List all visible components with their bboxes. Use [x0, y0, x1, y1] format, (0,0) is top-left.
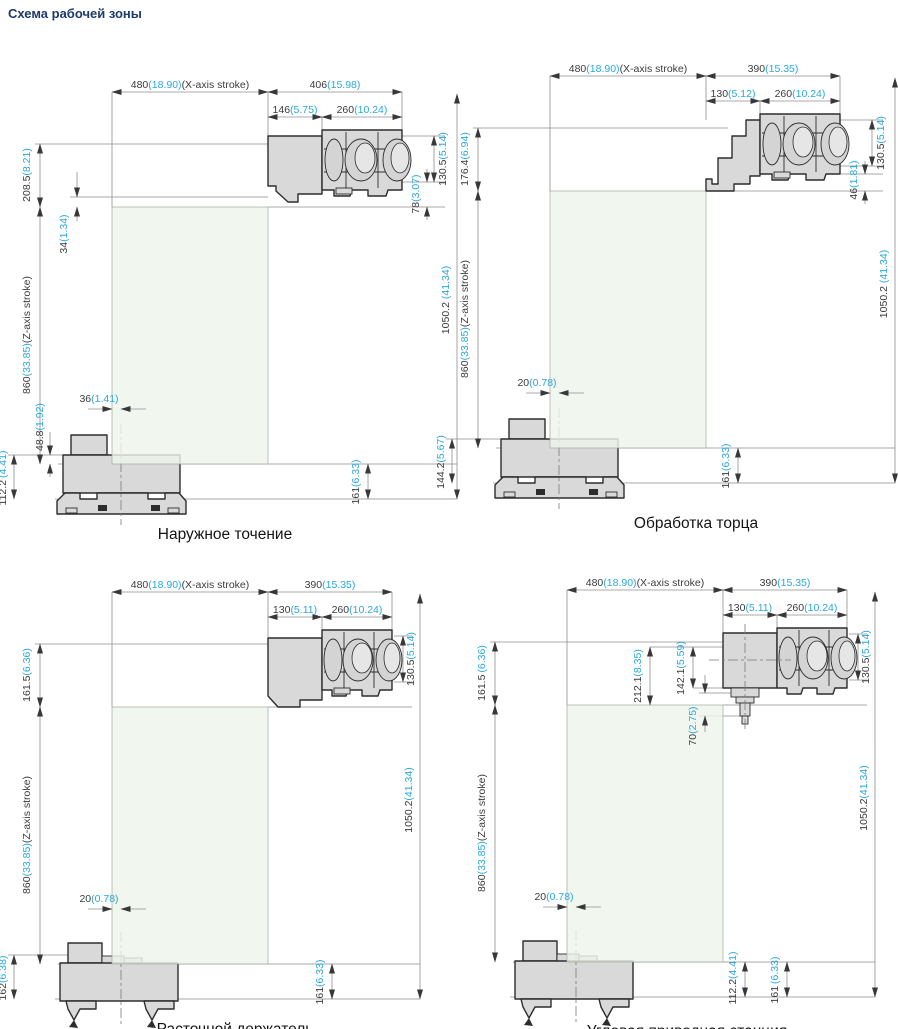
dim-z-stroke: 860(33.85)(Z-axis stroke) [476, 774, 488, 892]
page-title: Схема рабочей зоны [8, 6, 142, 21]
dim-sub1: 130(5.11) [728, 602, 772, 614]
panel-caption: Угловая приводная станция [587, 1023, 787, 1029]
dim-left-top: 176.4(6.94) [459, 132, 471, 186]
dim-total-height: 1050.2(41.34) [403, 767, 415, 832]
panel-caption: Наружное точение [158, 526, 292, 543]
work-zone-diagram: Схема рабочей зоны [0, 0, 898, 1029]
panel-angular-drive-station: 480(18.90)(X-axis stroke) 390(15.35) 130… [476, 577, 875, 1029]
dim-48-8: 48.8(1.92) [34, 403, 46, 451]
dim-130-5: 130.5(5.14) [860, 630, 872, 684]
dim-78: 78(3.07) [410, 174, 422, 213]
dim-sub2: 260(10.24) [337, 104, 388, 116]
work-zone-area [567, 705, 723, 962]
dim-z-stroke: 860(33.85)(Z-axis stroke) [459, 260, 471, 378]
dim-212-1: 212.1(8.35) [632, 649, 644, 703]
dim-total-height: 1050.2(41.34) [440, 266, 452, 334]
dim-turret-width: 406(15.98) [310, 79, 361, 91]
dim-offset: 20(0.78) [534, 891, 573, 903]
dim-70: 70(2.75) [687, 706, 699, 745]
dim-z-stroke: 860(33.85)(Z-axis stroke) [21, 776, 33, 894]
dim-base-left: 112.2(4.41) [0, 451, 9, 506]
dim-x-stroke: 480(18.90)(X-axis stroke) [586, 577, 705, 589]
dim-130-5: 130.5(5.14) [405, 632, 417, 686]
dim-130-5: 130.5(5.14) [437, 132, 449, 186]
dim-x-stroke: 480(18.90)(X-axis stroke) [131, 579, 250, 591]
dim-total-height: 1050.2(41.34) [878, 250, 890, 318]
dim-112-2: 112.2(4.41) [727, 952, 739, 1005]
dim-46: 46(1.81) [848, 160, 860, 199]
dim-sub1: 130(5.11) [273, 604, 317, 616]
dim-turret-width: 390(15.35) [748, 63, 799, 75]
turret [268, 130, 411, 202]
dim-z-stroke: 860(33.85)(Z-axis stroke) [21, 276, 33, 394]
dim-sub2: 260(10.24) [332, 604, 383, 616]
dim-base-left: 162(6.38) [0, 956, 9, 1001]
panel-caption: Обработка торца [634, 515, 759, 532]
dim-offset: 36(1.41) [79, 393, 118, 405]
dim-sub1: 146(5.75) [273, 104, 318, 116]
turret [268, 630, 402, 707]
dim-sub2: 260(10.24) [787, 602, 838, 614]
dim-x-stroke: 480(18.90)(X-axis stroke) [569, 63, 688, 75]
panel-boring-holder: 480(18.90)(X-axis stroke) 390(15.35) 130… [0, 579, 420, 1029]
dim-sub1: 130(5.12) [711, 88, 756, 100]
dim-161: 161(6.33) [350, 460, 362, 505]
dim-130-5: 130.5(5.14) [875, 116, 887, 170]
dim-left-top: 208.5(8.21) [21, 148, 33, 202]
dim-turret-width: 390(15.35) [760, 577, 811, 589]
dim-161: 161(6.33) [769, 957, 781, 1004]
dim-offset: 20(0.78) [517, 377, 556, 389]
panel-face-machining: 480(18.90)(X-axis stroke) 390(15.35) 130… [435, 63, 895, 532]
panel-external-turning: 480(18.90)(X-axis stroke) 406(15.98) 146… [0, 79, 457, 543]
dim-left-top: 161.5(6.36) [476, 645, 488, 701]
dim-x-stroke: 480(18.90)(X-axis stroke) [131, 79, 250, 91]
work-zone-area [112, 207, 268, 464]
dim-offset: 20(0.78) [79, 893, 118, 905]
dim-142-1: 142.1(5.59) [675, 641, 687, 695]
turret [706, 114, 849, 191]
dim-161: 161(6.33) [314, 960, 326, 1005]
diagram-canvas: 480(18.90)(X-axis stroke) 406(15.98) 146… [0, 22, 898, 1029]
work-zone-area [550, 191, 706, 448]
dim-total-height: 1050.2(41.34) [858, 765, 870, 830]
dim-34: 34(1.34) [58, 214, 70, 253]
panel-caption: Расточной держатель [157, 1021, 314, 1029]
dim-sub2: 260(10.24) [775, 88, 826, 100]
dim-turret-width: 390(15.35) [305, 579, 356, 591]
dim-left-top: 161.5(6.36) [21, 648, 33, 702]
dim-base-left: 144.2(5.67) [435, 435, 447, 489]
dim-161: 161(6.33) [720, 444, 732, 489]
work-zone-area [112, 707, 268, 964]
